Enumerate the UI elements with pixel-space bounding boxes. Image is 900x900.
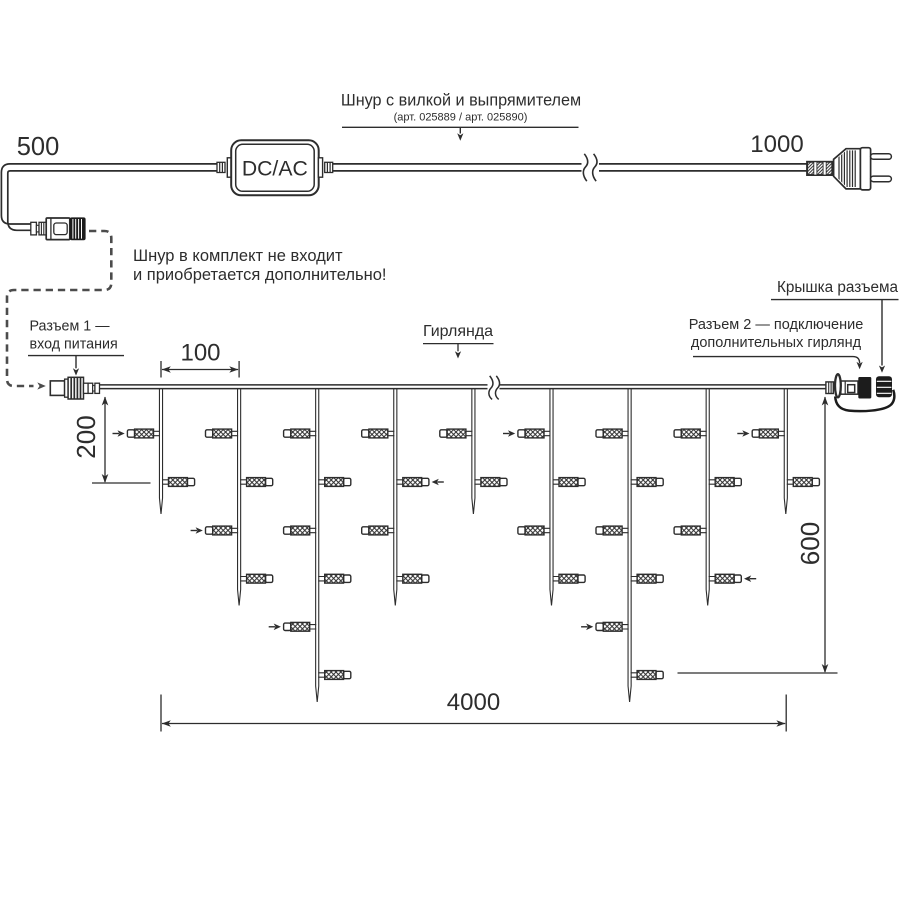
svg-text:Шнур с вилкой и выпрямителем: Шнур с вилкой и выпрямителем <box>341 92 581 110</box>
svg-text:и приобретается дополнительно!: и приобретается дополнительно! <box>133 266 387 284</box>
svg-text:200: 200 <box>71 415 101 458</box>
svg-text:Шнур в комплект не входит: Шнур в комплект не входит <box>133 247 343 265</box>
svg-text:(арт. 025889 / арт. 025890): (арт. 025889 / арт. 025890) <box>394 112 528 124</box>
svg-text:500: 500 <box>17 133 60 161</box>
svg-text:Разъем 2 — подключение: Разъем 2 — подключение <box>689 317 864 333</box>
svg-text:4000: 4000 <box>447 689 500 716</box>
svg-text:1000: 1000 <box>750 131 803 158</box>
svg-text:Гирлянда: Гирлянда <box>423 323 493 340</box>
svg-text:дополнительных гирлянд: дополнительных гирлянд <box>691 335 862 351</box>
svg-text:Крышка разъема: Крышка разъема <box>777 279 899 296</box>
svg-text:600: 600 <box>795 522 825 565</box>
svg-text:вход питания: вход питания <box>30 337 118 353</box>
svg-text:Разъем 1 —: Разъем 1 — <box>30 319 111 335</box>
svg-text:DC/AC: DC/AC <box>242 157 308 180</box>
svg-text:100: 100 <box>180 339 220 366</box>
